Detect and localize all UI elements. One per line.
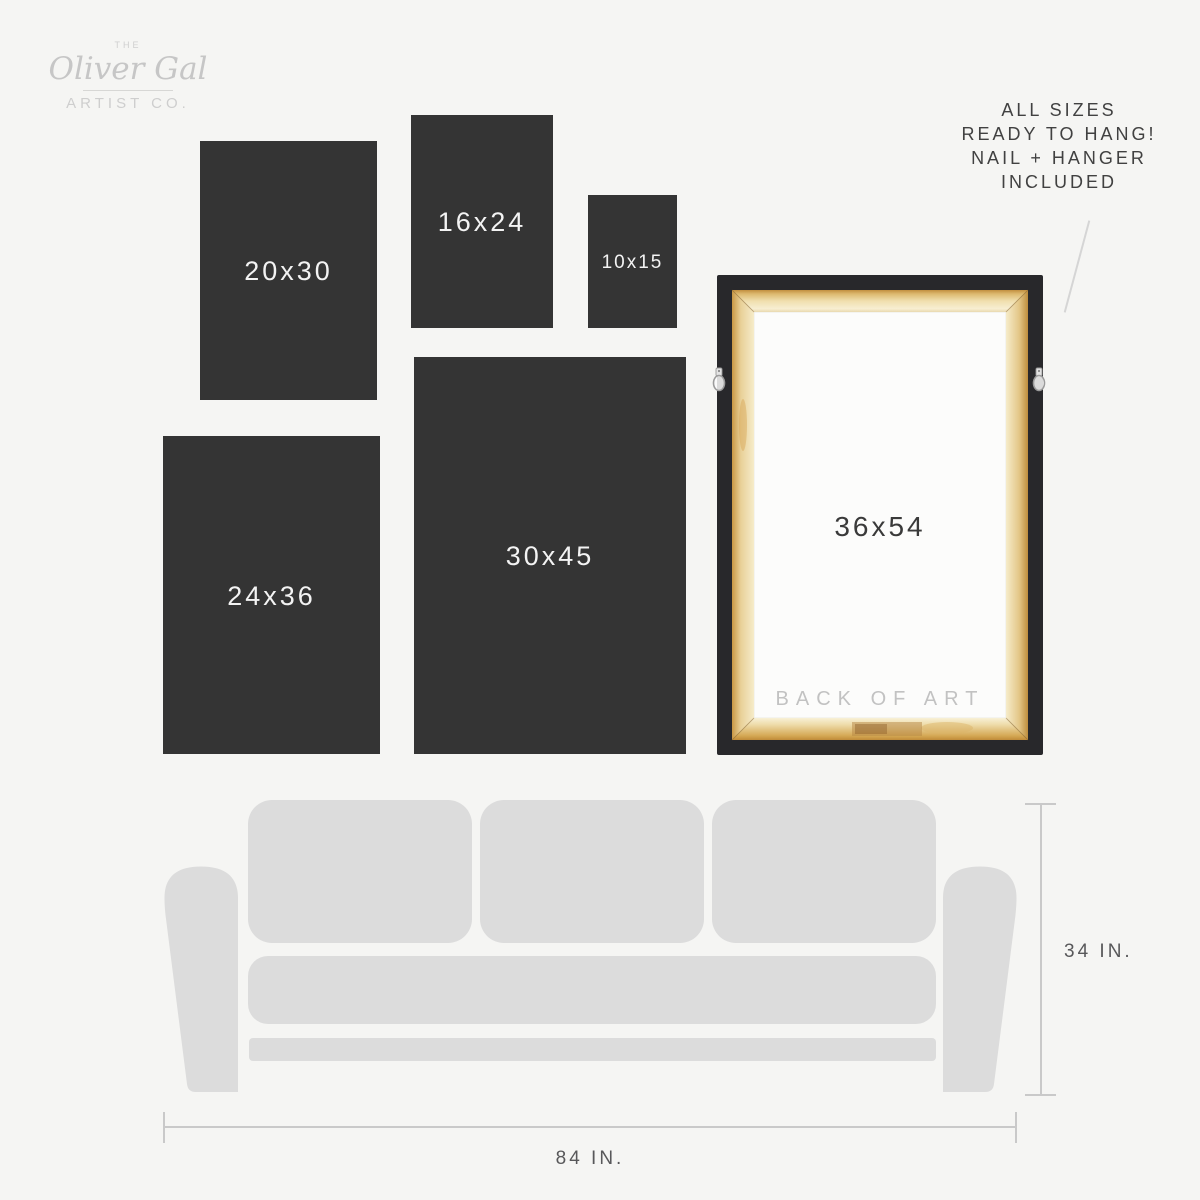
note-line-3: NAIL + HANGER: [928, 146, 1190, 170]
logo-subtitle: ARTIST CO.: [40, 95, 216, 112]
d-ring-hanger-icon: [1031, 366, 1047, 393]
size-label: 30x45: [506, 541, 595, 572]
couch-armrest-right: [943, 867, 1017, 1093]
couch-silhouette: [160, 795, 1022, 1095]
size-box-16x24: 16x24: [411, 115, 553, 328]
back-of-art-label: BACK OF ART: [717, 688, 1043, 711]
wood-bar-top: [732, 290, 1028, 312]
size-label: 24x36: [227, 581, 316, 612]
width-dimension-label: 84 IN.: [490, 1148, 690, 1170]
logo-name: Oliver Gal: [40, 52, 216, 86]
size-label: 20x30: [244, 256, 333, 287]
logo-the: THE: [40, 40, 216, 50]
size-box-20x30: 20x30: [200, 141, 377, 400]
height-dimension-label: 34 IN.: [1064, 941, 1133, 963]
brand-logo: THE Oliver Gal ARTIST CO.: [40, 40, 216, 112]
logo-divider: [83, 90, 173, 91]
note-line-2: READY TO HANG!: [928, 122, 1190, 146]
couch-back-cushion: [480, 800, 704, 943]
couch-back-cushion: [712, 800, 936, 943]
width-dimension-tick-left: [163, 1112, 165, 1143]
size-box-10x15: 10x15: [588, 195, 677, 328]
height-dimension-line: [1040, 804, 1042, 1095]
size-label: 16x24: [438, 207, 527, 238]
height-dimension-tick-top: [1025, 803, 1056, 805]
couch-back-cushion: [248, 800, 472, 943]
size-box-24x36: 24x36: [163, 436, 380, 754]
couch-seat-cushion: [248, 956, 936, 1024]
size-box-30x45: 30x45: [414, 357, 686, 754]
size-label: 10x15: [602, 252, 664, 274]
couch-base: [249, 1038, 936, 1061]
frame-back-36x54: 36x54 BACK OF ART: [717, 275, 1043, 755]
note-line-4: INCLUDED: [928, 170, 1190, 194]
height-dimension-tick-bottom: [1025, 1094, 1056, 1096]
ready-to-hang-note: ALL SIZES READY TO HANG! NAIL + HANGER I…: [928, 98, 1190, 194]
note-line-1: ALL SIZES: [928, 98, 1190, 122]
wood-knot: [739, 399, 747, 451]
wood-stamp-dark: [855, 724, 887, 734]
wood-grain: [921, 722, 973, 734]
width-dimension-line: [164, 1126, 1016, 1128]
couch-armrest-left: [165, 867, 239, 1093]
frame-size-label: 36x54: [717, 511, 1043, 543]
note-pointer-line: [1064, 220, 1091, 312]
d-ring-hanger-icon: [711, 366, 727, 393]
width-dimension-tick-right: [1015, 1112, 1017, 1143]
